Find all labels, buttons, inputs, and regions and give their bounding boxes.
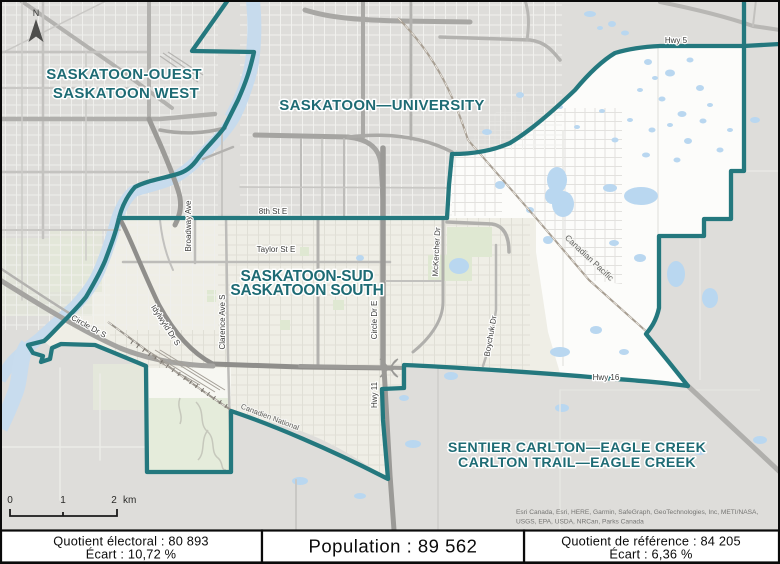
svg-text:SASKATOON-OUEST: SASKATOON-OUEST (46, 66, 202, 83)
svg-text:Hwy 11: Hwy 11 (370, 381, 379, 408)
svg-text:SENTIER CARLTON—EAGLE CREEK: SENTIER CARLTON—EAGLE CREEK (448, 440, 707, 456)
svg-text:Population : 89 562: Population : 89 562 (309, 536, 478, 557)
svg-text:Circle Dr E: Circle Dr E (370, 301, 379, 340)
svg-text:Écart : 10,72 %: Écart : 10,72 % (86, 547, 177, 562)
svg-text:SASKATOON—UNIVERSITY: SASKATOON—UNIVERSITY (279, 97, 484, 114)
svg-text:8th St E: 8th St E (259, 207, 287, 216)
svg-text:km: km (123, 495, 136, 506)
svg-text:Clarence Ave S: Clarence Ave S (218, 295, 227, 350)
svg-text:USGS, EPA, USDA, NRCan, Parks: USGS, EPA, USDA, NRCan, Parks Canada (516, 519, 644, 526)
svg-text:SASKATOON SOUTH: SASKATOON SOUTH (230, 282, 383, 299)
svg-text:1: 1 (60, 495, 66, 506)
svg-text:Écart : 6,36 %: Écart : 6,36 % (609, 547, 692, 562)
svg-text:Hwy 5: Hwy 5 (665, 36, 688, 45)
svg-text:Esri Canada, Esri, HERE, Garmi: Esri Canada, Esri, HERE, Garmin, SafeGra… (516, 509, 758, 516)
svg-text:2: 2 (111, 495, 117, 506)
svg-text:N: N (33, 8, 40, 18)
svg-text:SASKATOON WEST: SASKATOON WEST (53, 85, 199, 102)
svg-text:Taylor St E: Taylor St E (257, 245, 296, 254)
svg-text:0: 0 (7, 495, 13, 506)
svg-text:Hwy 16: Hwy 16 (593, 373, 620, 382)
svg-text:Broadway Ave: Broadway Ave (184, 200, 193, 252)
svg-text:CARLTON TRAIL—EAGLE CREEK: CARLTON TRAIL—EAGLE CREEK (458, 455, 696, 471)
